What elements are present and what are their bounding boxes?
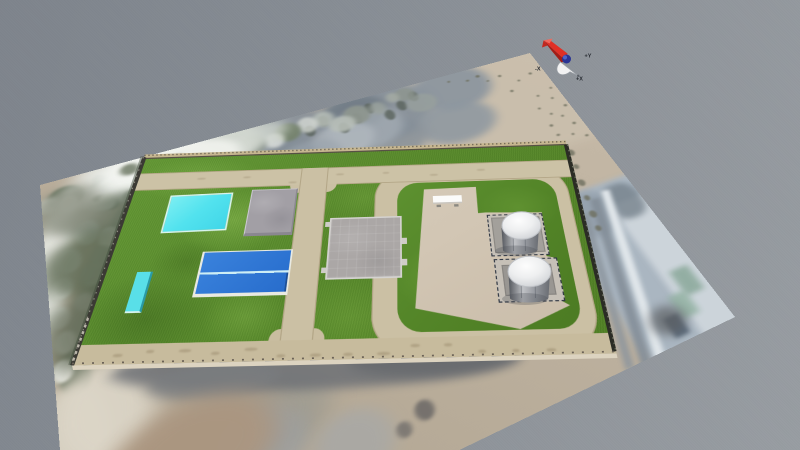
svg-text:-X: -X [535, 67, 541, 73]
svg-text:+Y: +Y [585, 54, 592, 60]
svg-text:+X: +X [576, 77, 583, 83]
